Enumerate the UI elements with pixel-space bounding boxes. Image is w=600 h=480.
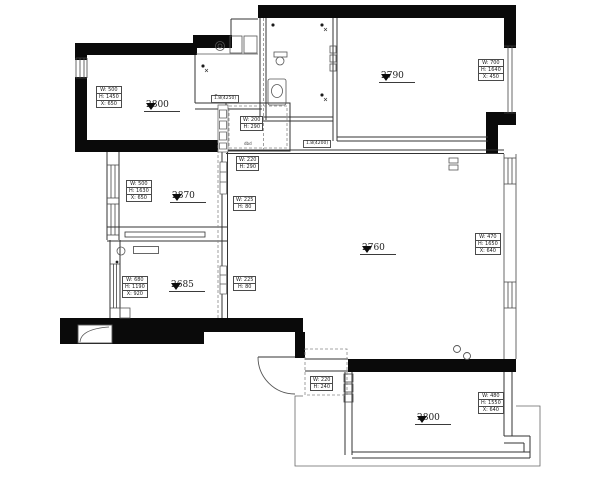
br-corner-step bbox=[504, 436, 530, 458]
dim-row: H: 290 bbox=[241, 124, 262, 130]
balcony-door-pivot-1 bbox=[454, 346, 461, 353]
window-living-lower bbox=[504, 282, 516, 308]
dim-row: W: 680 bbox=[123, 277, 147, 284]
room-number-bottom-right: 2800 bbox=[415, 405, 451, 425]
wall-kitchen-step bbox=[193, 35, 232, 48]
toilet-tank bbox=[268, 79, 286, 105]
beam-tag-entry: W: 220 H: 240 bbox=[310, 376, 333, 391]
window-ml-lower bbox=[107, 204, 119, 235]
dim-row: X: 450 bbox=[479, 74, 503, 80]
light-dot bbox=[116, 261, 118, 263]
dim-row: H: 1190 bbox=[123, 284, 147, 291]
dim-row: W: 500 bbox=[97, 87, 121, 94]
living-right-wall bbox=[504, 154, 516, 359]
dim-row: H: 1450 bbox=[97, 94, 121, 101]
dim-row: H: 1640 bbox=[479, 67, 503, 74]
dim-tag-bottom-right: W: 480 H: 1550 X: 640 bbox=[478, 392, 504, 414]
divider-window bbox=[125, 232, 205, 237]
dim-row: W: 220 bbox=[237, 157, 258, 164]
elevation-triangle-icon bbox=[417, 416, 427, 423]
note-tiny: dbd bbox=[244, 141, 252, 146]
beam-tag-foyer-lower: W: 220 H: 290 bbox=[236, 156, 259, 171]
light-mark bbox=[205, 69, 208, 72]
wall-right-upper bbox=[504, 18, 516, 48]
wall-top-left bbox=[75, 43, 197, 55]
dim-tag-top-right: W: 700 H: 1640 X: 450 bbox=[478, 59, 504, 81]
elevation-triangle-icon bbox=[171, 283, 181, 290]
window-living-upper bbox=[504, 158, 516, 184]
light-dot bbox=[202, 65, 205, 68]
window-tl-left bbox=[76, 58, 87, 78]
dim-row: X: 920 bbox=[123, 291, 147, 297]
entry-door-arc bbox=[258, 357, 295, 394]
dim-row: X: 650 bbox=[97, 101, 121, 107]
lower-left-fixture bbox=[117, 247, 125, 255]
dim-row: X: 650 bbox=[127, 195, 151, 201]
dim-tag-mid-left: W: 500 H: 1630 X: 650 bbox=[126, 180, 152, 202]
room-number-lower-left: 2685 bbox=[169, 272, 205, 292]
entry-passage bbox=[305, 359, 348, 371]
br-left-wall bbox=[345, 372, 352, 455]
dim-row: X: 640 bbox=[476, 248, 500, 254]
dim-row: H: 80 bbox=[234, 284, 255, 290]
dim-row: H: 240 bbox=[311, 384, 332, 390]
dim-row: W: 225 bbox=[234, 197, 255, 204]
dim-row: W: 480 bbox=[479, 393, 503, 400]
dim-tag-lower-left: W: 680 H: 1190 X: 920 bbox=[122, 276, 148, 298]
wall-left-upper bbox=[75, 43, 87, 60]
br-right-wall bbox=[504, 372, 512, 436]
outline-top-step bbox=[231, 19, 258, 35]
room-number-top-left: 2800 bbox=[144, 92, 180, 112]
dim-row: W: 470 bbox=[476, 234, 500, 241]
bath-right-wall bbox=[333, 18, 337, 141]
dim-row: W: 200 bbox=[241, 117, 262, 124]
room-number-top-right: 2790 bbox=[379, 63, 415, 83]
dim-row: W: 500 bbox=[127, 181, 151, 188]
light-dot bbox=[272, 24, 275, 27]
note-hall-dim: 1.8(4200) bbox=[303, 140, 331, 148]
wall-niche bbox=[78, 325, 112, 343]
bath-sink-shelf bbox=[274, 52, 287, 57]
wall-hatch-strips bbox=[218, 105, 228, 294]
toilet-bowl bbox=[272, 85, 283, 98]
dim-row: H: 1630 bbox=[127, 188, 151, 195]
room-number-living: 2760 bbox=[360, 235, 396, 255]
wall-right-step-h bbox=[486, 112, 516, 125]
window-ll-left bbox=[110, 264, 120, 308]
dim-tag-living: W: 470 H: 1650 X: 640 bbox=[475, 233, 501, 255]
interior-walls bbox=[107, 18, 530, 458]
floor-plan: 2800 2790 2870 2685 2760 2800 W: 500 H: … bbox=[0, 0, 600, 480]
kitchen-appliance-2 bbox=[244, 36, 257, 53]
dim-row: H: 290 bbox=[237, 164, 258, 170]
elevation-triangle-icon bbox=[146, 103, 156, 110]
light-dot bbox=[321, 24, 324, 27]
balcony-door-pivot-2 bbox=[464, 353, 471, 360]
light-mark bbox=[324, 98, 327, 101]
lower-left-cabinet bbox=[120, 308, 130, 318]
living-radiator-2 bbox=[449, 165, 458, 170]
dim-row: X: 640 bbox=[479, 407, 503, 413]
dim-tag-top-left: W: 500 H: 1450 X: 650 bbox=[96, 86, 122, 108]
wall-ll-bottom-step bbox=[197, 318, 303, 332]
window-tr-right bbox=[504, 46, 516, 113]
elevation-triangle-icon bbox=[362, 246, 372, 253]
wall-tl-bottom bbox=[75, 140, 226, 152]
wall-br-top bbox=[348, 359, 516, 372]
room-number-mid-left: 2870 bbox=[170, 183, 206, 203]
bath-sink bbox=[276, 57, 284, 65]
light-mark bbox=[324, 28, 327, 31]
note-kitchen-dim: 1.8(4250) bbox=[211, 95, 239, 103]
window-ml-upper bbox=[107, 165, 119, 198]
dim-row: W: 225 bbox=[234, 277, 255, 284]
br-bottom-wall bbox=[352, 452, 530, 458]
light-dot bbox=[321, 94, 324, 97]
dim-row: H: 80 bbox=[234, 204, 255, 210]
dim-row: W: 220 bbox=[311, 377, 332, 384]
elevation-triangle-icon bbox=[381, 74, 391, 81]
kitchen-bath-wall bbox=[260, 18, 266, 120]
lower-left-outer-wall bbox=[110, 240, 120, 318]
beam-tag-foyer-upper: W: 200 H: 290 bbox=[240, 116, 263, 131]
dim-row: H: 1650 bbox=[476, 241, 500, 248]
dim-row: H: 1550 bbox=[479, 400, 503, 407]
top-right-room-bottom-wall bbox=[337, 137, 488, 141]
wall-top-main bbox=[258, 5, 516, 18]
beam-tag-wall-mid: W: 225 H: 80 bbox=[233, 196, 256, 211]
dim-row: W: 700 bbox=[479, 60, 503, 67]
elevation-triangle-icon bbox=[172, 194, 182, 201]
bath-bottom-wall bbox=[262, 117, 333, 121]
beam-tag-wall-lower: W: 225 H: 80 bbox=[233, 276, 256, 291]
floor-plan-canvas bbox=[0, 0, 600, 480]
small-label-box bbox=[133, 246, 159, 254]
living-radiator-1 bbox=[449, 158, 458, 163]
wall-entry-stub bbox=[295, 332, 305, 358]
